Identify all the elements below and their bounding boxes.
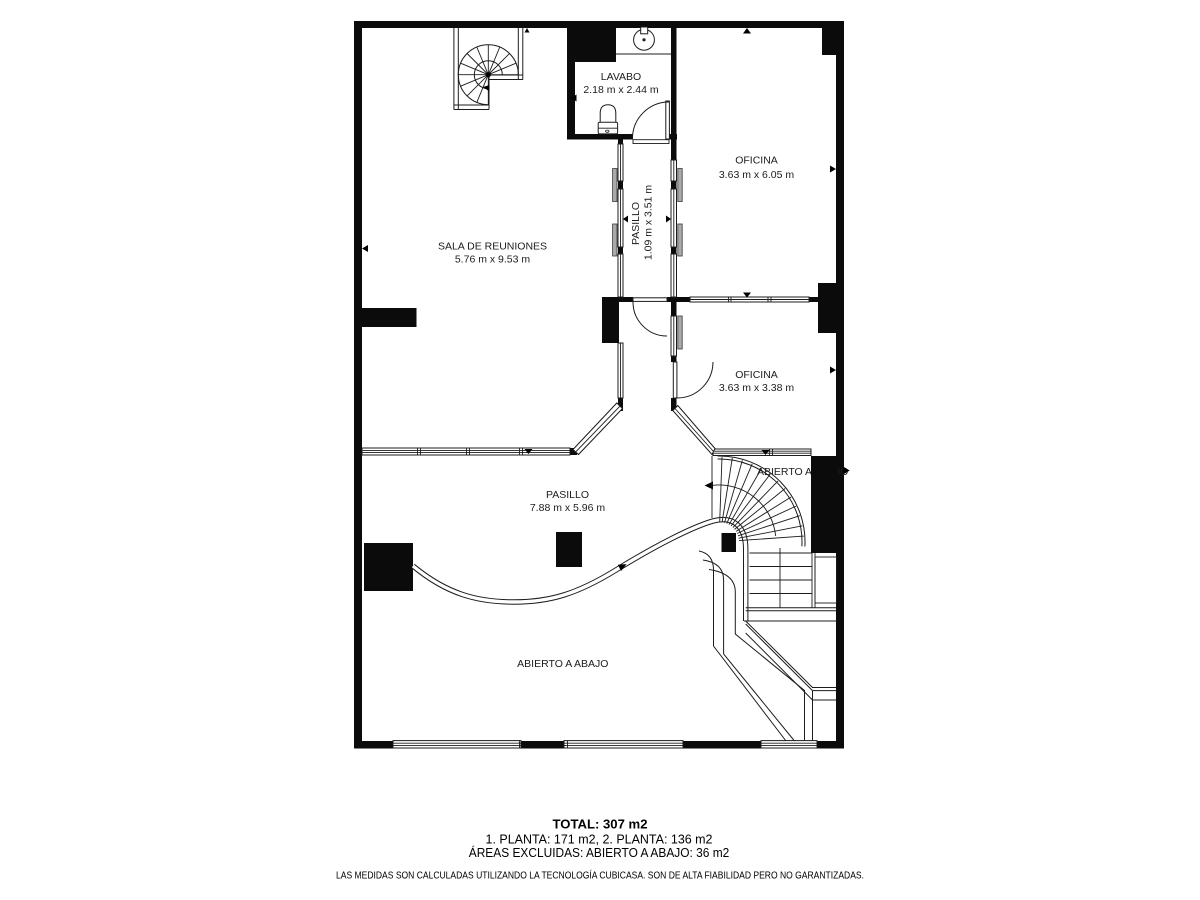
svg-text:2.18 m x 2.44 m: 2.18 m x 2.44 m [583, 84, 659, 96]
svg-text:OFICINA: OFICINA [735, 369, 778, 381]
svg-text:OFICINA: OFICINA [735, 155, 778, 167]
svg-text:3.63 m x 3.38 m: 3.63 m x 3.38 m [719, 382, 795, 394]
svg-text:5.76 m x 9.53 m: 5.76 m x 9.53 m [455, 254, 531, 266]
svg-text:TOTAL: 307 m2: TOTAL: 307 m2 [553, 817, 648, 832]
svg-text:PASILLO: PASILLO [546, 489, 589, 501]
svg-text:SALA DE REUNIONES: SALA DE REUNIONES [438, 241, 547, 253]
svg-text:LAS MEDIDAS SON CALCULADAS UTI: LAS MEDIDAS SON CALCULADAS UTILIZANDO LA… [336, 869, 864, 882]
svg-text:7.88 m x 5.96 m: 7.88 m x 5.96 m [530, 502, 606, 514]
svg-text:PASILLO: PASILLO [630, 202, 642, 245]
svg-text:ÁREAS EXCLUIDAS: ABIERTO A ABA: ÁREAS EXCLUIDAS: ABIERTO A ABAJO: 36 m2 [469, 845, 730, 860]
svg-text:ABIERTO A ABAJO: ABIERTO A ABAJO [517, 658, 608, 670]
svg-text:3.63 m x 6.05 m: 3.63 m x 6.05 m [719, 169, 795, 181]
svg-text:LAVABO: LAVABO [601, 71, 641, 83]
svg-text:1.09 m x 3.51 m: 1.09 m x 3.51 m [643, 185, 655, 261]
